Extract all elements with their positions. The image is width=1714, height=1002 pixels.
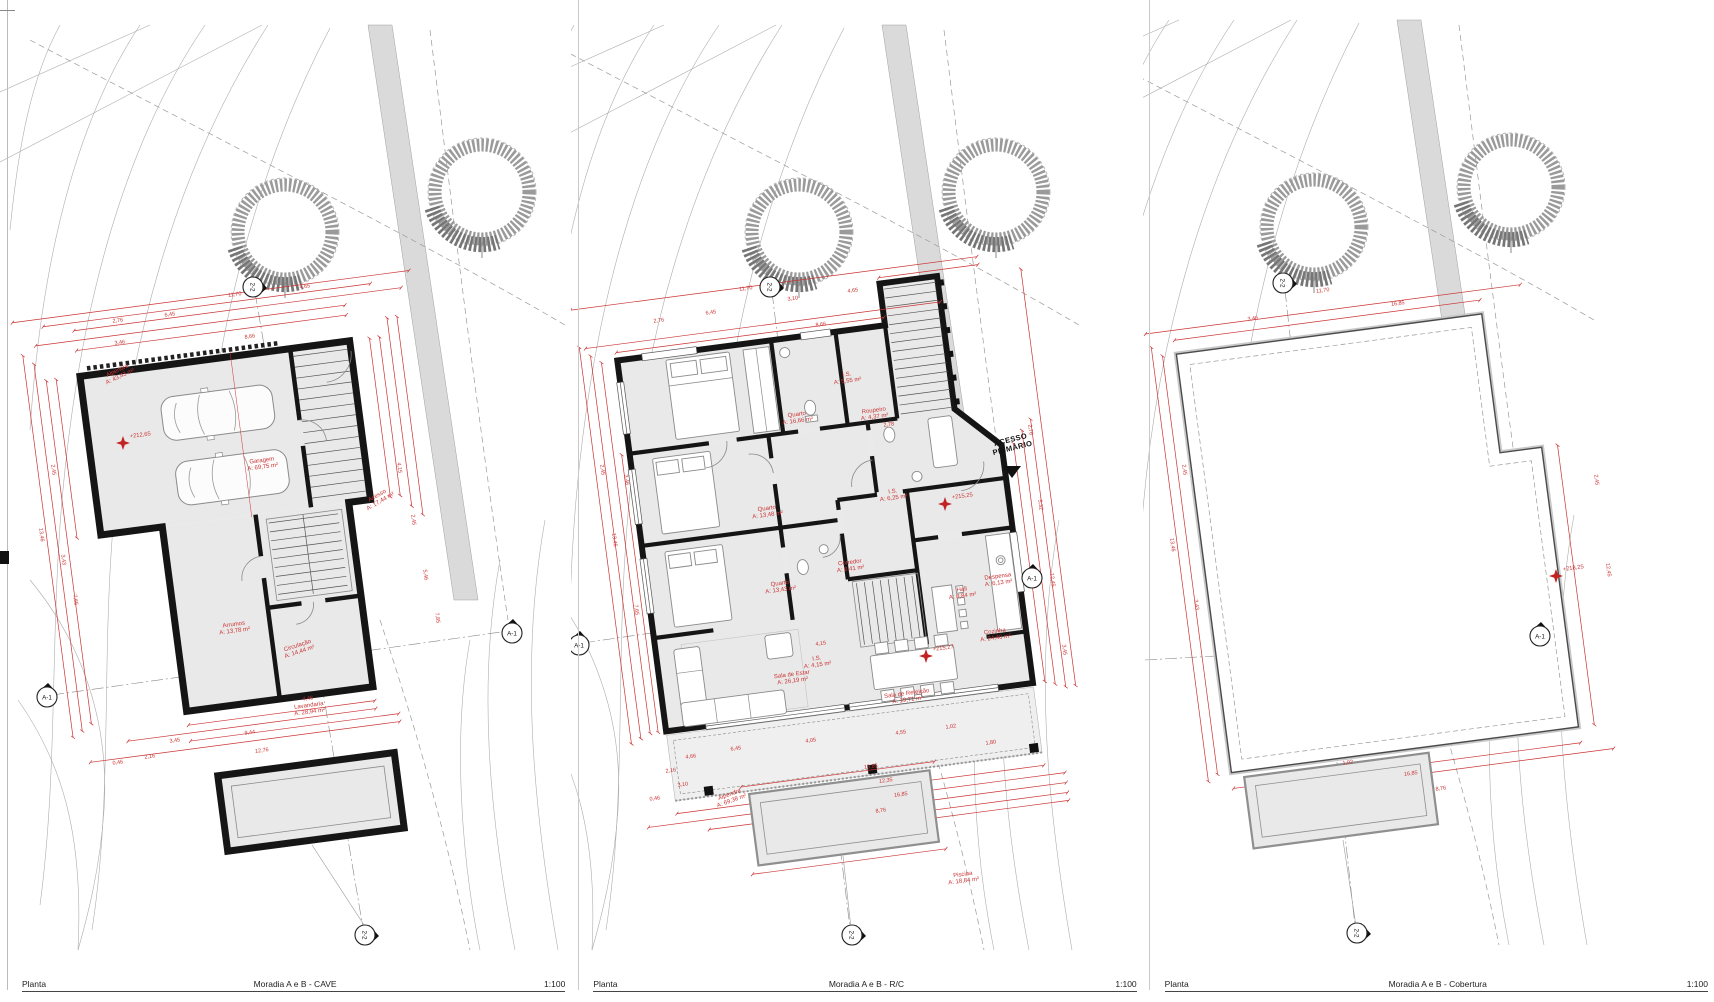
dim-label: 2,45 <box>1180 464 1187 475</box>
sheet-separator <box>578 0 579 990</box>
svg-text:2-2: 2-2 <box>361 930 368 940</box>
dim-label: 11,70 <box>1316 287 1330 295</box>
dim-label: 13,46 <box>610 533 618 547</box>
sheet-type-label: Planta <box>1165 979 1189 989</box>
svg-text:2-2: 2-2 <box>1352 928 1359 938</box>
pool-leader <box>312 845 364 925</box>
svg-text:A-1: A-1 <box>574 642 584 649</box>
title-bar: Planta Moradia A e B - CAVE 1:100 Planta… <box>0 975 1714 1002</box>
dim-label: 2,16 <box>144 753 155 760</box>
dim-label: 12,76 <box>255 747 269 755</box>
svg-text:2-2: 2-2 <box>1278 278 1285 288</box>
dim-label: 11,70 <box>228 291 242 299</box>
dim-label: 4,46 <box>302 695 313 702</box>
section-marker: 2-2 <box>355 925 379 945</box>
building-rc <box>571 251 1090 856</box>
dim-label: 3,46 <box>623 474 630 485</box>
title-rule <box>593 991 1136 992</box>
sheet-title: Moradia A e B - Cobertura <box>1189 979 1687 989</box>
dim-label: 7,65 <box>633 604 640 615</box>
dim-label: 2,76 <box>1027 424 1034 435</box>
dim-label: 6,45 <box>706 309 717 316</box>
dim-label: 2,45 <box>599 464 606 475</box>
dim-label: 12,45 <box>1048 573 1056 587</box>
room-label: LavandariaA: 28,94 m² <box>293 701 325 717</box>
sheet-type-label: Planta <box>593 979 617 989</box>
section-marker: A-1 <box>1022 564 1042 588</box>
dim-label: 2,45 <box>409 514 416 525</box>
dim-label: 2,45 <box>1592 474 1599 485</box>
svg-text:2-2: 2-2 <box>766 282 773 292</box>
dim-label: 3,43 <box>1192 599 1199 610</box>
section-marker: 2-2 <box>1347 923 1371 943</box>
dim-label: 3,10 <box>788 295 799 302</box>
dim-label: 0,46 <box>650 795 661 802</box>
pool <box>218 753 404 852</box>
title-rule <box>22 991 565 992</box>
dim-label: 12,45 <box>1604 563 1612 577</box>
section-marker: A-1 <box>502 619 522 643</box>
roof <box>1145 281 1613 802</box>
section-marker: 2-2 <box>842 925 866 945</box>
dim-label: 13,46 <box>37 528 45 542</box>
dim-label: 4,65 <box>299 283 310 290</box>
dim-label: 13,46 <box>1168 538 1176 552</box>
title-rule <box>1165 991 1708 992</box>
level-label: +218,25 <box>1562 564 1584 573</box>
dim-label: 4,15 <box>395 462 402 473</box>
dim-label: 2,45 <box>49 464 56 475</box>
dim-label: 5,46 <box>421 569 428 580</box>
dim-label: 7,65 <box>71 594 78 605</box>
dim-label: 11,70 <box>739 285 753 293</box>
room-label: PiscinaA: 18,84 m² <box>947 870 979 886</box>
plan-rc: 11,702,766,453,104,658,662,4513,463,467,… <box>571 0 1142 975</box>
sheet-scale: 1:100 <box>1115 979 1136 989</box>
sheet-type-label: Planta <box>22 979 46 989</box>
dim-label: 16,85 <box>1390 300 1404 308</box>
sheet-scale: 1:100 <box>544 979 565 989</box>
dim-label: 9,44 <box>244 729 255 736</box>
plan-cobertura: 11,7016,853,4613,462,453,432,4512,4516,8… <box>1143 0 1714 975</box>
sheet-edge-tick <box>0 10 15 11</box>
dim-label: 3,46 <box>114 339 125 346</box>
svg-text:A-1: A-1 <box>1535 633 1545 640</box>
svg-text:A-1: A-1 <box>507 630 517 637</box>
svg-text:A-1: A-1 <box>42 694 52 701</box>
sheet-title: Moradia A e B - R/C <box>617 979 1115 989</box>
sheet-separator <box>1149 0 1150 990</box>
plan-cave: 2,766,4511,704,658,663,4613,462,453,437,… <box>0 0 571 975</box>
sheet-scale: 1:100 <box>1687 979 1708 989</box>
drawing-sheet: 2,766,4511,704,658,663,4613,462,453,437,… <box>0 0 1714 1002</box>
pool-leader <box>843 856 851 928</box>
title-block-rc: Planta Moradia A e B - R/C 1:100 <box>571 975 1142 1002</box>
section-marker: A-1 <box>37 683 57 707</box>
dim-label: 0,46 <box>112 759 123 766</box>
title-block-cave: Planta Moradia A e B - CAVE 1:100 <box>0 975 571 1002</box>
dim-label: 8,66 <box>244 333 255 340</box>
section-marker: A-1 <box>571 631 589 655</box>
sheet-edge <box>7 0 8 990</box>
sheet-edge-tick <box>0 551 9 564</box>
svg-text:A-1: A-1 <box>1027 575 1037 582</box>
dim-label: 4,65 <box>848 287 859 294</box>
dim-label: 7,85 <box>433 612 440 623</box>
dim-label: 8,66 <box>816 321 827 328</box>
title-block-cobertura: Planta Moradia A e B - Cobertura 1:100 <box>1143 975 1714 1002</box>
section-marker: 2-2 <box>243 277 267 297</box>
dim-label: 3,46 <box>1247 315 1258 322</box>
pool-leader <box>1343 840 1356 926</box>
dim-label: 5,32 <box>1037 499 1044 510</box>
dim-label: 2,76 <box>112 317 123 324</box>
dim-label: 3,45 <box>169 737 180 744</box>
dim-label: 8,76 <box>1435 785 1446 792</box>
svg-text:2-2: 2-2 <box>848 930 855 940</box>
access-note: ACESSOPRIMÁRIO <box>990 430 1034 457</box>
sheet-title: Moradia A e B - CAVE <box>46 979 544 989</box>
svg-text:2-2: 2-2 <box>249 282 256 292</box>
dim-label: 2,76 <box>654 317 665 324</box>
